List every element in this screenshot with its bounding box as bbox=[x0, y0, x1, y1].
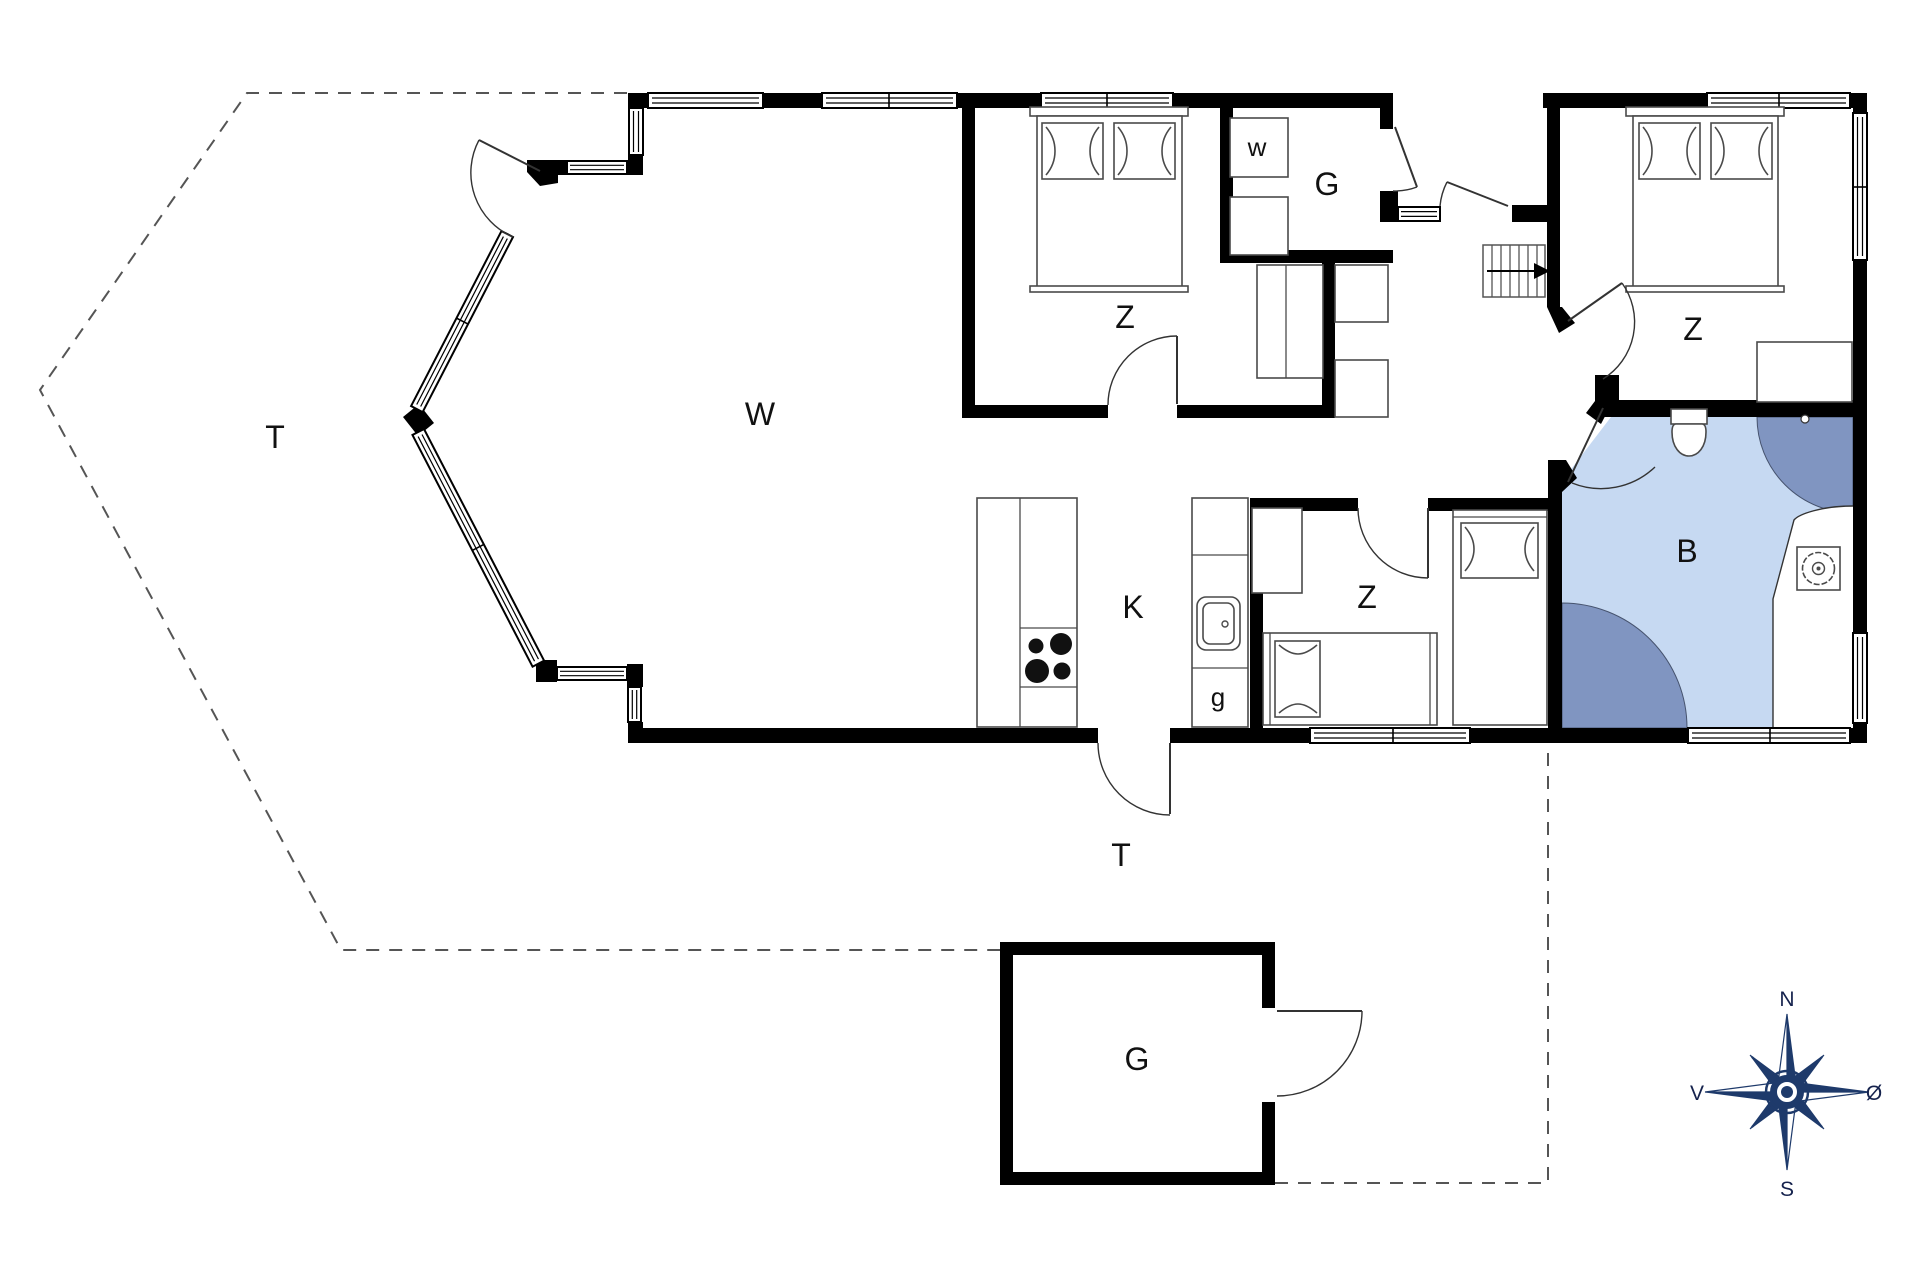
window-icon bbox=[1310, 728, 1470, 743]
window-icon bbox=[411, 231, 513, 412]
hall-cabinet bbox=[1335, 265, 1388, 322]
floorplan-canvas: W T T Z Z Z K B w G g G N S V Ø bbox=[0, 0, 1920, 1280]
window-icon bbox=[629, 108, 643, 155]
window-icon bbox=[1041, 93, 1173, 108]
room-label-bedroom-top: Z bbox=[1115, 299, 1135, 335]
room-label-terrace-west: T bbox=[265, 419, 285, 455]
entry-room-door-arc bbox=[1393, 127, 1417, 191]
floorplan-page: W T T Z Z Z K B w G g G N S V Ø bbox=[0, 0, 1920, 1280]
window-icon bbox=[412, 429, 544, 667]
window-icon bbox=[1707, 93, 1850, 108]
room-label-bathroom: B bbox=[1676, 533, 1697, 569]
stairs-icon bbox=[1483, 245, 1550, 297]
bedroom2-door-arc bbox=[1568, 283, 1635, 379]
window-icon bbox=[822, 93, 957, 108]
window-icon bbox=[648, 93, 763, 108]
window-icon bbox=[628, 687, 641, 722]
single-bed-icon bbox=[1453, 510, 1547, 725]
desk bbox=[1757, 342, 1852, 402]
sink-icon bbox=[1197, 597, 1240, 650]
entrance-door-arc bbox=[1440, 182, 1508, 206]
window-icon bbox=[1688, 728, 1850, 743]
front-door-arc bbox=[471, 140, 540, 237]
utility-cabinet bbox=[1230, 197, 1288, 255]
window-icon bbox=[1853, 633, 1867, 723]
compass-west-label: V bbox=[1690, 1082, 1704, 1105]
garage-door-opening bbox=[1260, 1008, 1277, 1102]
bedroom-middle-door-arc bbox=[1358, 508, 1428, 578]
garage-door-arc bbox=[1277, 1011, 1362, 1096]
window-icon bbox=[557, 667, 627, 680]
room-label-outbuilding: G bbox=[1125, 1041, 1150, 1077]
kitchen-counter bbox=[977, 498, 1077, 727]
hall-cabinet bbox=[1335, 360, 1388, 417]
single-bed-icon bbox=[1263, 633, 1437, 725]
room-label-utility-w: w bbox=[1247, 132, 1267, 162]
compass-east-label: Ø bbox=[1866, 1082, 1882, 1105]
wardrobe bbox=[1252, 508, 1302, 593]
room-label-kitchen: K bbox=[1122, 589, 1143, 625]
terrace-door-arc bbox=[1098, 743, 1170, 815]
room-label-terrace-south: T bbox=[1111, 837, 1131, 873]
room-label-entry-room: G bbox=[1315, 166, 1340, 202]
window-icon bbox=[567, 161, 627, 174]
room-label-bedroom-right: Z bbox=[1683, 311, 1703, 347]
toilet-icon bbox=[1671, 409, 1707, 456]
room-label-bedroom-middle: Z bbox=[1357, 579, 1377, 615]
room-label-living: W bbox=[745, 396, 776, 432]
compass-north-label: N bbox=[1779, 988, 1794, 1011]
double-bed-icon bbox=[1030, 107, 1188, 292]
shower-head-icon bbox=[1801, 415, 1809, 423]
room-label-pantry-g: g bbox=[1211, 682, 1225, 712]
compass-south-label: S bbox=[1780, 1178, 1794, 1201]
window-icon bbox=[1853, 113, 1867, 260]
compass-rose-icon bbox=[1705, 1014, 1869, 1170]
washbasin-icon bbox=[1797, 547, 1840, 590]
closet bbox=[1257, 265, 1323, 378]
double-bed-icon bbox=[1626, 107, 1784, 292]
window-icon bbox=[1398, 207, 1440, 221]
bedroom1-door-arc bbox=[1108, 336, 1177, 405]
